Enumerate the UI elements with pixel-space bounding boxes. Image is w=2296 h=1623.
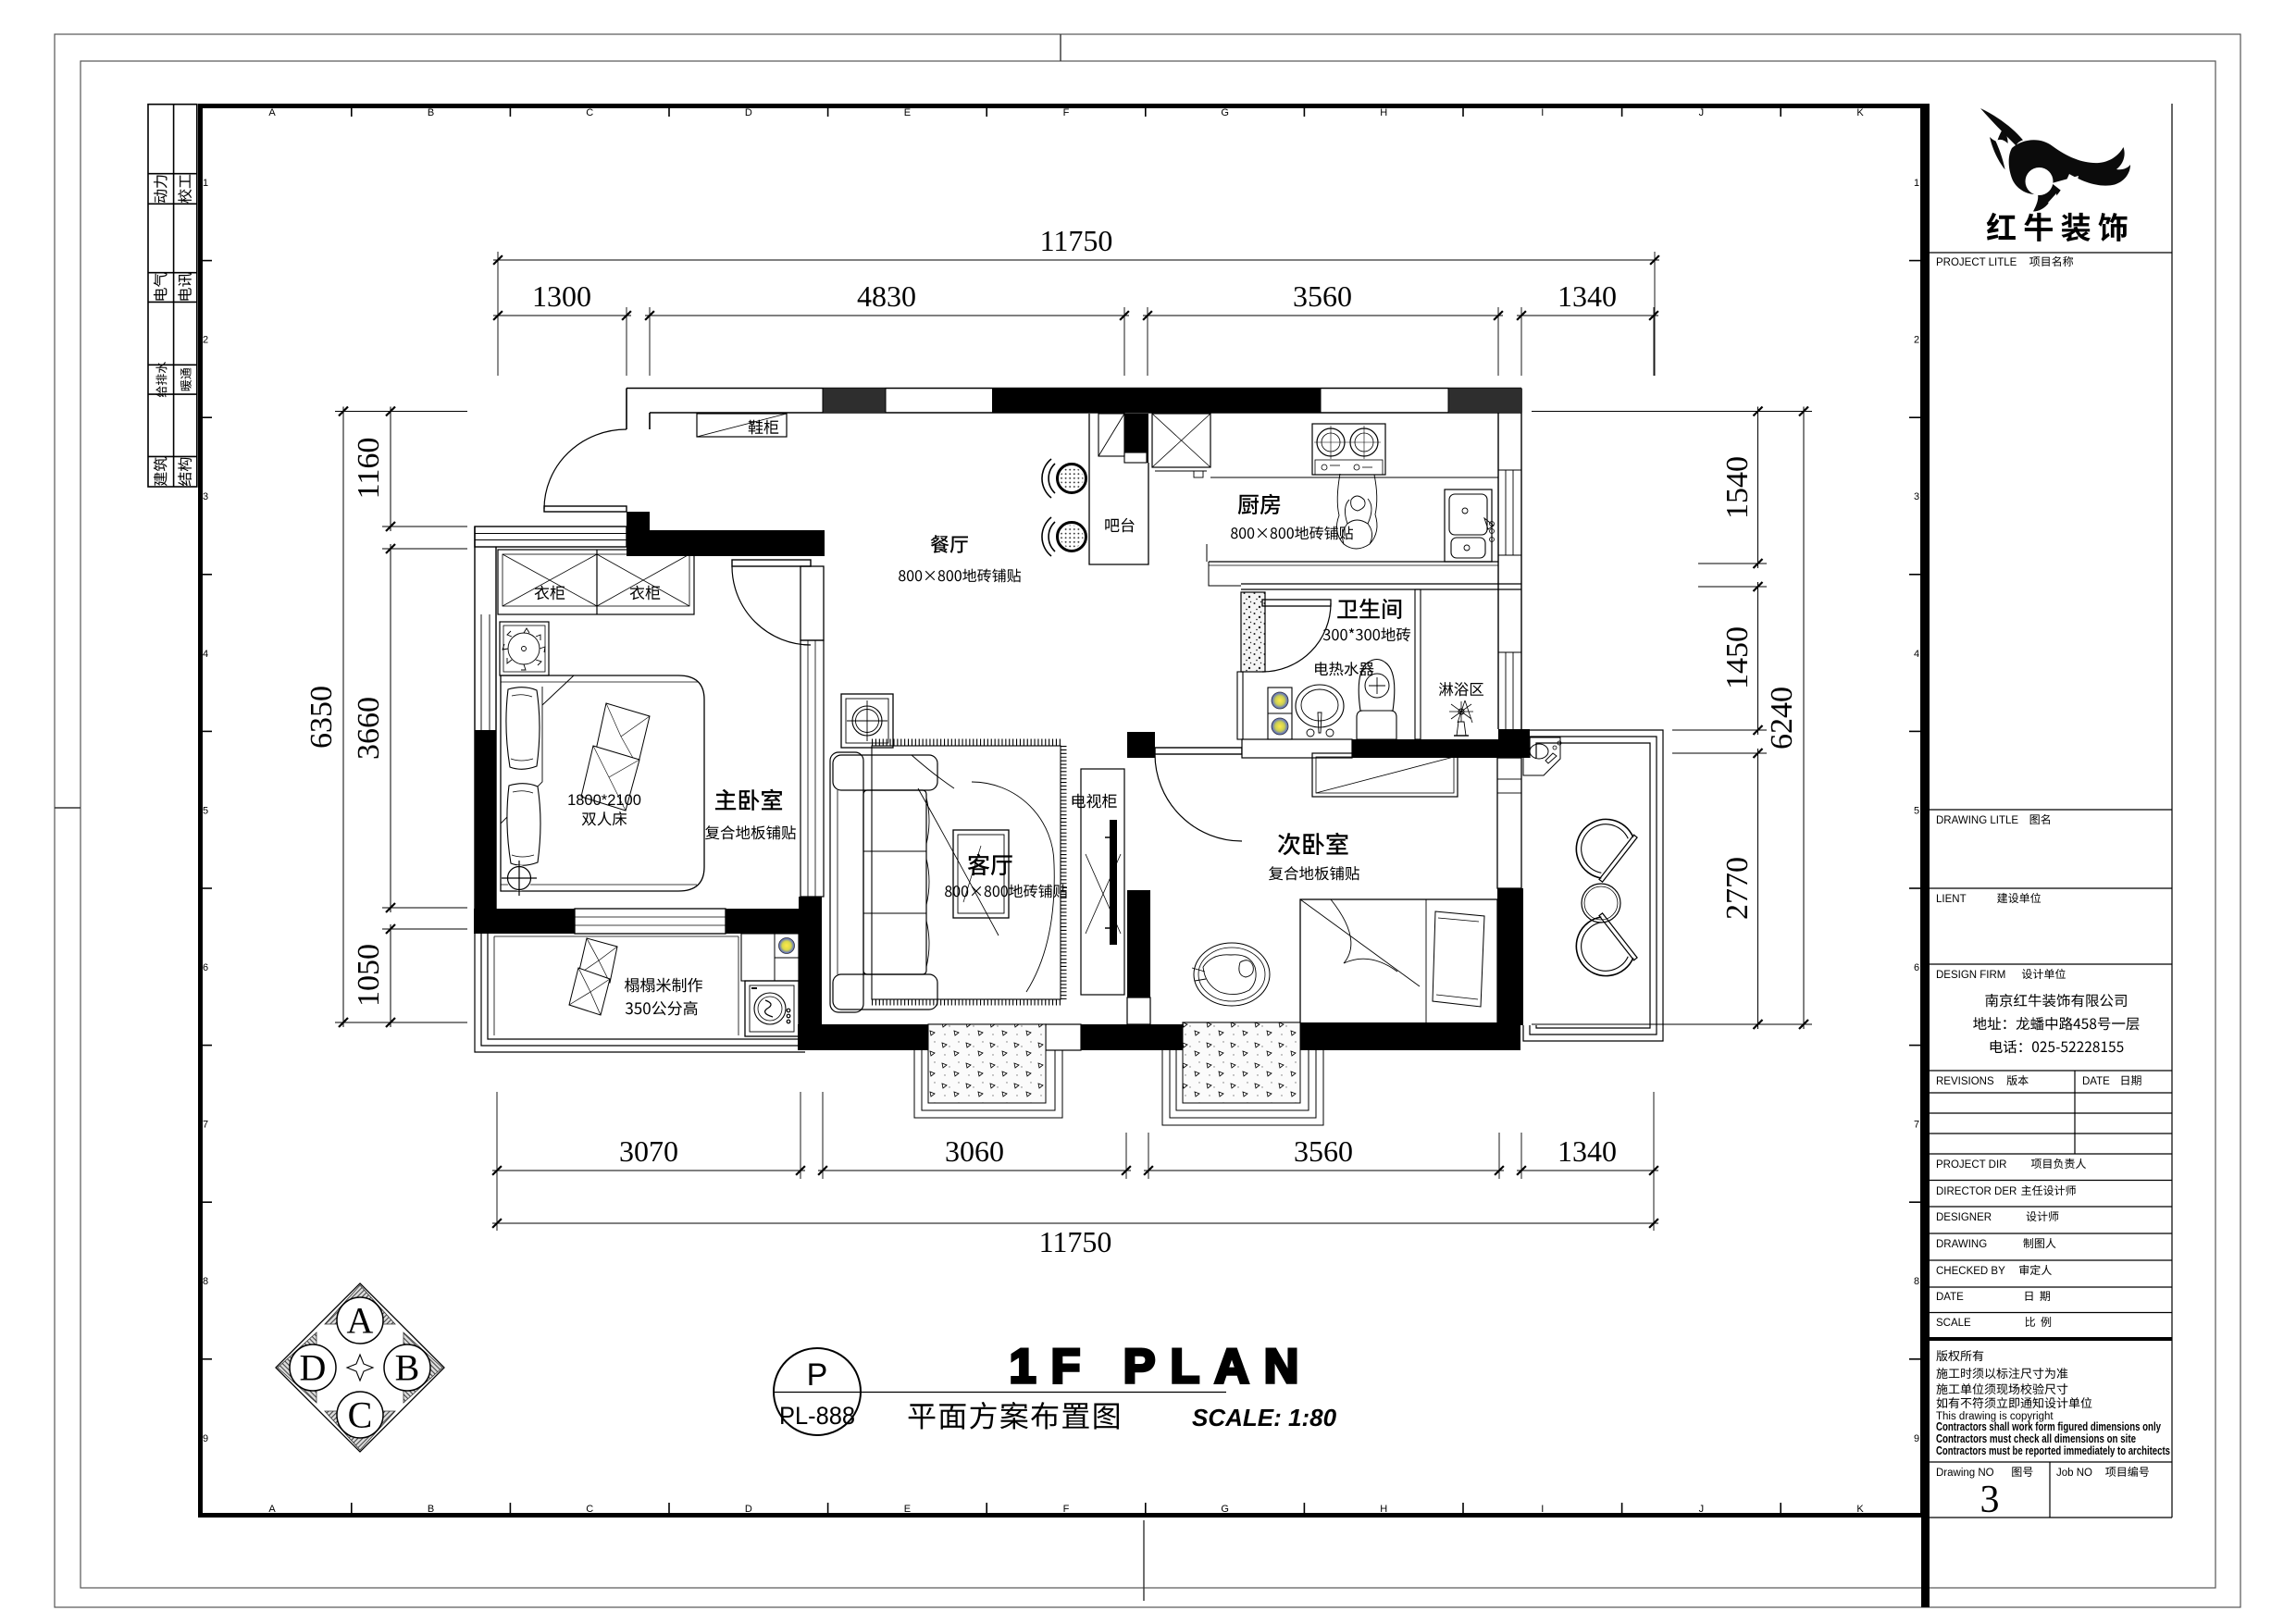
svg-text:B: B bbox=[395, 1347, 420, 1389]
svg-text:B: B bbox=[428, 1504, 434, 1515]
svg-text:4: 4 bbox=[203, 649, 208, 660]
svg-text:PROJECT LITLE: PROJECT LITLE bbox=[1936, 257, 2017, 268]
svg-text:1F PLAN: 1F PLAN bbox=[1010, 1340, 1314, 1394]
svg-text:1340: 1340 bbox=[1558, 1134, 1617, 1168]
svg-text:J: J bbox=[1699, 1504, 1705, 1515]
svg-text:3: 3 bbox=[1914, 491, 1919, 502]
svg-text:1160: 1160 bbox=[352, 438, 386, 500]
svg-text:3660: 3660 bbox=[352, 697, 386, 760]
svg-text:A: A bbox=[268, 107, 276, 118]
svg-text:A: A bbox=[347, 1300, 374, 1342]
svg-text:9: 9 bbox=[1914, 1433, 1919, 1444]
svg-text:PROJECT DIR: PROJECT DIR bbox=[1936, 1159, 2006, 1171]
svg-text:F: F bbox=[1063, 1504, 1070, 1515]
svg-text:4: 4 bbox=[1914, 649, 1919, 660]
svg-text:7: 7 bbox=[203, 1120, 208, 1131]
svg-text:SCALE: 1:80: SCALE: 1:80 bbox=[1192, 1404, 1337, 1431]
svg-text:LIENT: LIENT bbox=[1936, 894, 1967, 905]
svg-text:1340: 1340 bbox=[1558, 279, 1617, 313]
svg-text:C: C bbox=[586, 1504, 593, 1515]
svg-text:Contractors shall work form fi: Contractors shall work form figured dime… bbox=[1936, 1420, 2161, 1433]
svg-text:6350: 6350 bbox=[304, 686, 339, 749]
svg-text:3560: 3560 bbox=[1293, 279, 1352, 313]
svg-text:C: C bbox=[348, 1394, 373, 1436]
svg-text:2: 2 bbox=[203, 335, 208, 346]
svg-text:REVISIONS: REVISIONS bbox=[1936, 1076, 1994, 1087]
svg-text:B: B bbox=[428, 107, 434, 118]
svg-text:6240: 6240 bbox=[1765, 687, 1799, 750]
svg-text:P: P bbox=[807, 1357, 828, 1393]
svg-text:DATE: DATE bbox=[1936, 1292, 1964, 1303]
svg-text:4830: 4830 bbox=[857, 279, 916, 313]
svg-text:DESIGNER: DESIGNER bbox=[1936, 1212, 1992, 1223]
svg-text:K: K bbox=[1856, 107, 1864, 118]
svg-text:1: 1 bbox=[203, 178, 208, 189]
svg-text:D: D bbox=[745, 107, 752, 118]
svg-text:H: H bbox=[1380, 107, 1387, 118]
svg-text:11750: 11750 bbox=[1039, 1225, 1112, 1258]
svg-text:2: 2 bbox=[1914, 335, 1919, 346]
svg-text:Drawing NO: Drawing NO bbox=[1936, 1468, 1994, 1479]
svg-text:C: C bbox=[586, 107, 593, 118]
svg-text:DATE: DATE bbox=[2082, 1076, 2110, 1087]
svg-text:D: D bbox=[745, 1504, 752, 1515]
svg-text:11750: 11750 bbox=[1040, 224, 1113, 257]
svg-text:DESIGN FIRM: DESIGN FIRM bbox=[1936, 970, 2005, 981]
svg-text:1300: 1300 bbox=[532, 279, 591, 313]
svg-text:3070: 3070 bbox=[619, 1134, 678, 1168]
svg-text:H: H bbox=[1380, 1504, 1387, 1515]
svg-text:Job NO: Job NO bbox=[2056, 1468, 2092, 1479]
svg-text:CHECKED BY: CHECKED BY bbox=[1936, 1266, 2005, 1277]
svg-text:8: 8 bbox=[1914, 1276, 1919, 1287]
svg-text:I: I bbox=[1541, 1504, 1544, 1515]
svg-text:6: 6 bbox=[203, 962, 208, 973]
svg-text:9: 9 bbox=[203, 1433, 208, 1444]
svg-text:3060: 3060 bbox=[945, 1134, 1004, 1168]
svg-text:7: 7 bbox=[1914, 1120, 1919, 1131]
svg-text:DRAWING LITLE: DRAWING LITLE bbox=[1936, 815, 2018, 826]
svg-text:D: D bbox=[300, 1347, 327, 1389]
svg-text:2770: 2770 bbox=[1720, 857, 1755, 920]
svg-text:3560: 3560 bbox=[1294, 1134, 1353, 1168]
svg-text:1540: 1540 bbox=[1720, 456, 1755, 519]
svg-text:5: 5 bbox=[203, 805, 208, 816]
svg-text:PL-888: PL-888 bbox=[779, 1402, 855, 1430]
svg-text:G: G bbox=[1221, 1504, 1229, 1515]
svg-text:A: A bbox=[268, 1504, 276, 1515]
svg-text:3: 3 bbox=[203, 491, 208, 502]
svg-text:6: 6 bbox=[1914, 962, 1919, 973]
svg-text:8: 8 bbox=[203, 1276, 208, 1287]
svg-text:J: J bbox=[1699, 107, 1705, 118]
svg-text:Contractors must be reported i: Contractors must be reported immediately… bbox=[1936, 1444, 2170, 1457]
svg-text:E: E bbox=[904, 1504, 911, 1515]
svg-text:F: F bbox=[1063, 107, 1070, 118]
svg-text:5: 5 bbox=[1914, 805, 1919, 816]
svg-text:3: 3 bbox=[1980, 1479, 2000, 1521]
svg-text:G: G bbox=[1221, 107, 1229, 118]
svg-text:E: E bbox=[904, 107, 911, 118]
svg-text:DIRECTOR DER: DIRECTOR DER bbox=[1936, 1186, 2017, 1197]
svg-text:K: K bbox=[1856, 1504, 1864, 1515]
svg-text:SCALE: SCALE bbox=[1936, 1318, 1971, 1329]
svg-text:1450: 1450 bbox=[1720, 626, 1755, 689]
svg-text:1: 1 bbox=[1914, 178, 1919, 189]
svg-text:I: I bbox=[1541, 107, 1544, 118]
svg-text:1800*2100: 1800*2100 bbox=[567, 792, 641, 809]
svg-text:1050: 1050 bbox=[352, 944, 386, 1007]
svg-text:DRAWING: DRAWING bbox=[1936, 1239, 1987, 1250]
svg-text:Contractors must check all dim: Contractors must check all dimensions on… bbox=[1936, 1432, 2136, 1445]
